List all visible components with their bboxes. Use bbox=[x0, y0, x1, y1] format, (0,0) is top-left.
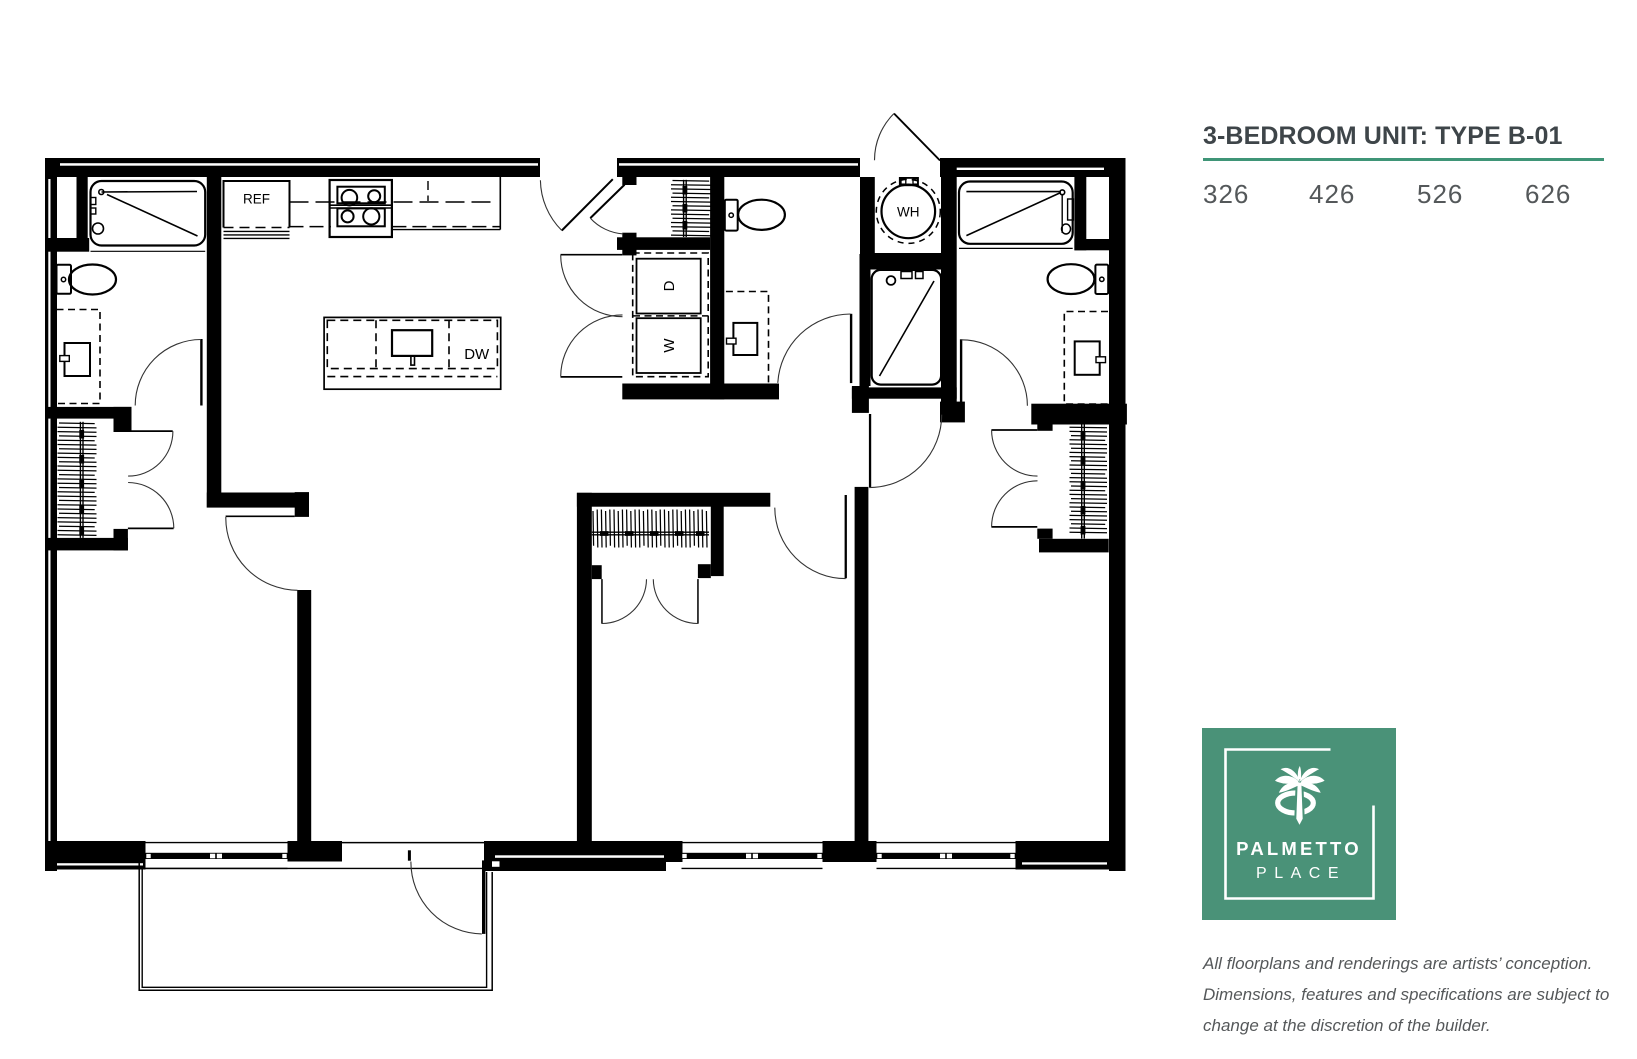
svg-text:REF: REF bbox=[243, 192, 270, 207]
svg-text:W: W bbox=[661, 338, 678, 353]
svg-text:D: D bbox=[661, 280, 678, 291]
svg-text:WH: WH bbox=[897, 205, 920, 220]
svg-text:PALMETTO: PALMETTO bbox=[1236, 838, 1362, 859]
svg-text:DW: DW bbox=[464, 346, 490, 363]
svg-text:PLACE: PLACE bbox=[1256, 865, 1346, 882]
